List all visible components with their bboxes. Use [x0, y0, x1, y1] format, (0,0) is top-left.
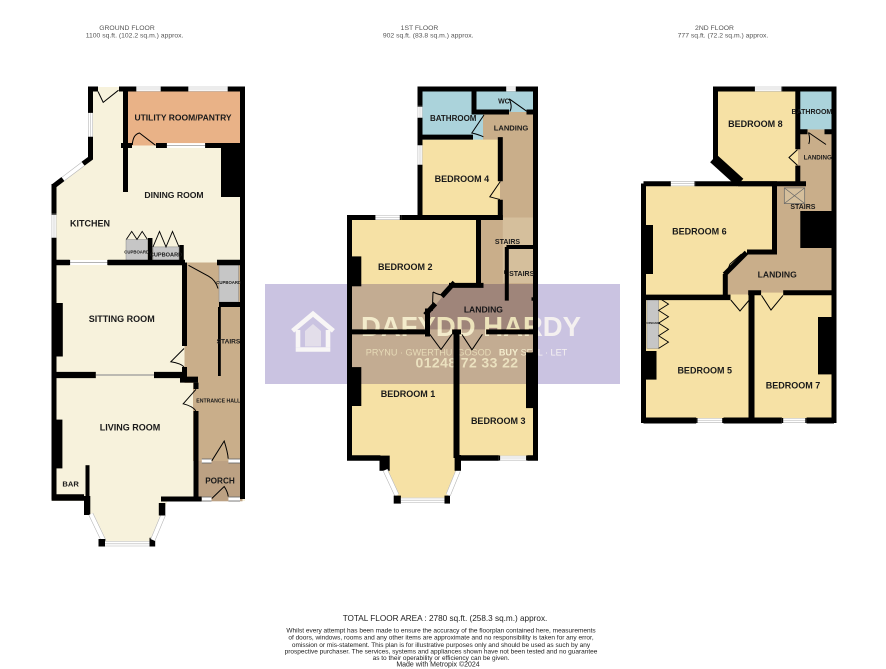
svg-text:SITTING ROOM: SITTING ROOM	[89, 314, 155, 324]
svg-text:CUPBOARD: CUPBOARD	[124, 250, 149, 255]
svg-text:902 sq.ft. (83.8 sq.m.) approx: 902 sq.ft. (83.8 sq.m.) approx.	[383, 32, 474, 39]
svg-text:PORCH: PORCH	[205, 477, 235, 486]
svg-text:CUPBOARD: CUPBOARD	[216, 280, 241, 285]
svg-text:ENTRANCE HALL: ENTRANCE HALL	[196, 399, 241, 405]
svg-text:STAIRS: STAIRS	[217, 339, 241, 346]
svg-text:1ST FLOOR: 1ST FLOOR	[401, 25, 439, 32]
svg-text:LANDING: LANDING	[494, 124, 529, 133]
svg-text:STAIRS: STAIRS	[509, 271, 534, 278]
svg-text:1100 sq.ft. (102.2 sq.m.) appr: 1100 sq.ft. (102.2 sq.m.) approx.	[86, 32, 184, 39]
svg-text:BATHROOM: BATHROOM	[792, 109, 833, 116]
svg-text:WC: WC	[498, 99, 510, 106]
svg-text:TOTAL FLOOR AREA : 2780 sq.ft.: TOTAL FLOOR AREA : 2780 sq.ft. (258.3 sq…	[343, 614, 548, 623]
svg-text:Made with Metropix ©2024: Made with Metropix ©2024	[396, 660, 479, 668]
svg-text:777 sq.ft. (72.2 sq.m.) approx: 777 sq.ft. (72.2 sq.m.) approx.	[678, 32, 769, 39]
svg-text:2ND FLOOR: 2ND FLOOR	[695, 25, 734, 32]
svg-text:BEDROOM 8: BEDROOM 8	[728, 119, 783, 129]
svg-text:BEDROOM 4: BEDROOM 4	[435, 174, 490, 184]
svg-text:BEDROOM 1: BEDROOM 1	[381, 389, 436, 399]
svg-text:CUPBOARD: CUPBOARD	[645, 321, 660, 325]
svg-text:BAR: BAR	[62, 479, 79, 488]
svg-text:DAFYDD HARDY: DAFYDD HARDY	[361, 311, 581, 342]
svg-text:STAIRS: STAIRS	[790, 204, 815, 211]
svg-text:DINING ROOM: DINING ROOM	[144, 190, 203, 200]
svg-text:BATHROOM: BATHROOM	[430, 114, 477, 123]
svg-text:GROUND FLOOR: GROUND FLOOR	[99, 25, 155, 32]
svg-text:BEDROOM 6: BEDROOM 6	[672, 227, 727, 237]
svg-text:Whilst every attempt has been: Whilst every attempt has been made to en…	[286, 627, 596, 634]
svg-text:LIVING ROOM: LIVING ROOM	[100, 423, 161, 433]
svg-text:CUPBOARD: CUPBOARD	[150, 253, 182, 259]
svg-text:UTILITY ROOM/PANTRY: UTILITY ROOM/PANTRY	[134, 113, 231, 123]
svg-text:BEDROOM 7: BEDROOM 7	[766, 380, 821, 390]
svg-text:LANDING: LANDING	[758, 269, 797, 279]
svg-text:BEDROOM 3: BEDROOM 3	[471, 416, 526, 426]
svg-text:01248 72 33 22: 01248 72 33 22	[416, 355, 519, 371]
svg-text:BEDROOM 5: BEDROOM 5	[677, 366, 732, 376]
svg-text:KITCHEN: KITCHEN	[70, 219, 110, 229]
svg-text:of doors, windows, rooms and a: of doors, windows, rooms and any other i…	[288, 635, 593, 642]
svg-text:BEDROOM 2: BEDROOM 2	[378, 262, 433, 272]
svg-text:LANDING: LANDING	[804, 155, 832, 162]
svg-text:STAIRS: STAIRS	[495, 239, 520, 246]
